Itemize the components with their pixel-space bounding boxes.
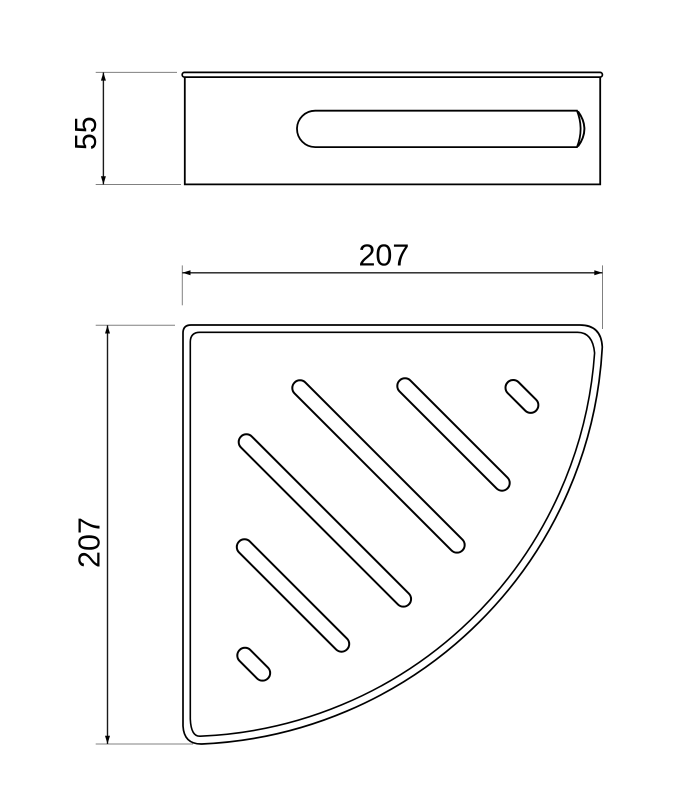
svg-text:207: 207 [72, 517, 106, 568]
svg-text:207: 207 [358, 239, 409, 273]
svg-text:55: 55 [69, 116, 103, 150]
